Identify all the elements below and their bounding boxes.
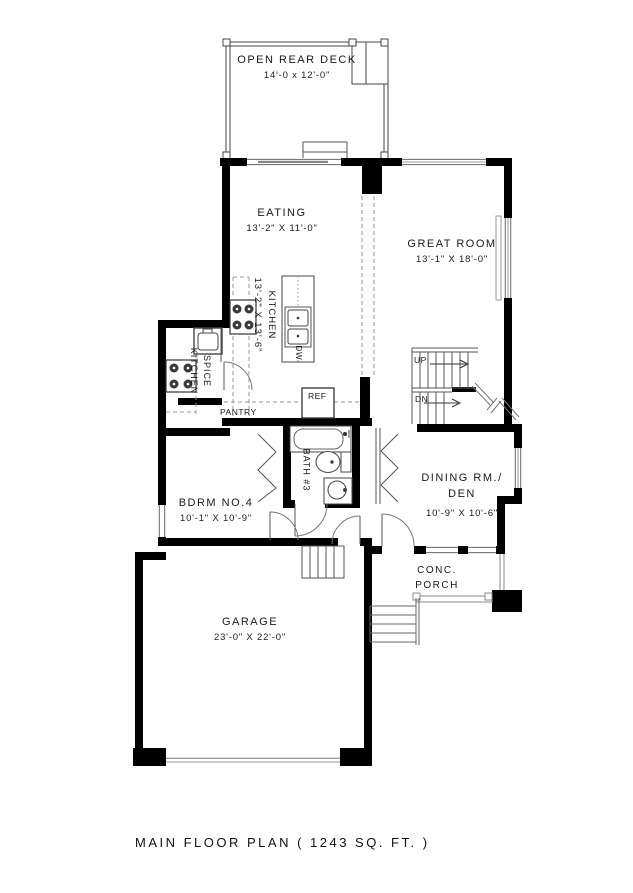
porch-line2: PORCH (415, 578, 459, 593)
toilet (316, 452, 351, 473)
deck-dims: 14'-0 x 12'-0" (237, 70, 356, 81)
great-room-dims: 13'-1" X 18'-0" (407, 254, 496, 265)
label-kitchen: KITCHEN 13'-2" X 13'-6" (250, 277, 278, 352)
bedroom-dims: 10'-1" X 10'-9" (179, 513, 254, 524)
floor-plan-page: OPEN REAR DECK 14'-0 x 12'-0" EATING 13'… (0, 0, 633, 893)
label-dining: DINING RM./ DEN 10'-9" X 10'-6" (421, 471, 502, 521)
garage-dims: 23'-0" X 22'-0" (214, 632, 286, 643)
label-up: UP (414, 355, 427, 365)
label-great-room: GREAT ROOM 13'-1" X 18'-0" (407, 238, 496, 265)
bath-text: BATH #3 (299, 449, 312, 492)
dining-line1: DINING RM./ (421, 471, 502, 487)
porch-steps (370, 598, 419, 645)
garage-steps (302, 546, 344, 578)
label-spice-kitchen: SPICE KITCHEN (187, 348, 213, 395)
label-deck: OPEN REAR DECK 14'-0 x 12'-0" (237, 54, 356, 81)
porch-line1: CONC. (415, 563, 459, 578)
pantry-text: PANTRY (220, 407, 257, 417)
label-pantry: PANTRY (220, 407, 257, 417)
dining-dims: 10'-9" X 10'-6" (421, 507, 502, 521)
great-room-name: GREAT ROOM (407, 238, 496, 250)
label-dn: DN (415, 394, 428, 404)
eating-name: EATING (246, 207, 317, 219)
label-eating: EATING 13'-2" X 11'-0" (246, 207, 317, 234)
label-bath: BATH #3 (299, 449, 312, 492)
label-bedroom: BDRM NO.4 10'-1" X 10'-9" (179, 497, 254, 524)
bath-sink (324, 478, 352, 504)
deck-name: OPEN REAR DECK (237, 54, 356, 66)
spice-kitchen-line1: SPICE (200, 348, 213, 395)
label-dw: DW (292, 345, 304, 360)
dn-text: DN (415, 394, 428, 404)
dw-text: DW (292, 345, 304, 360)
bedroom-name: BDRM NO.4 (179, 497, 254, 509)
plan-title: MAIN FLOOR PLAN ( 1243 SQ. FT. ) (135, 835, 430, 850)
eating-dims: 13'-2" X 11'-0" (246, 223, 317, 234)
ref-text: REF (308, 391, 327, 401)
dining-line2: DEN (421, 487, 502, 503)
floor-plan-drawing (0, 0, 633, 893)
kitchen-name: KITCHEN (264, 277, 278, 352)
up-text: UP (414, 355, 427, 365)
label-garage: GARAGE 23'-0" X 22'-0" (214, 616, 286, 643)
label-porch: CONC. PORCH (415, 563, 459, 593)
label-ref: REF (308, 391, 327, 401)
staircase (412, 348, 519, 424)
spice-kitchen-line2: KITCHEN (187, 348, 200, 395)
garage-name: GARAGE (214, 616, 286, 628)
kitchen-dims: 13'-2" X 13'-6" (250, 277, 264, 352)
